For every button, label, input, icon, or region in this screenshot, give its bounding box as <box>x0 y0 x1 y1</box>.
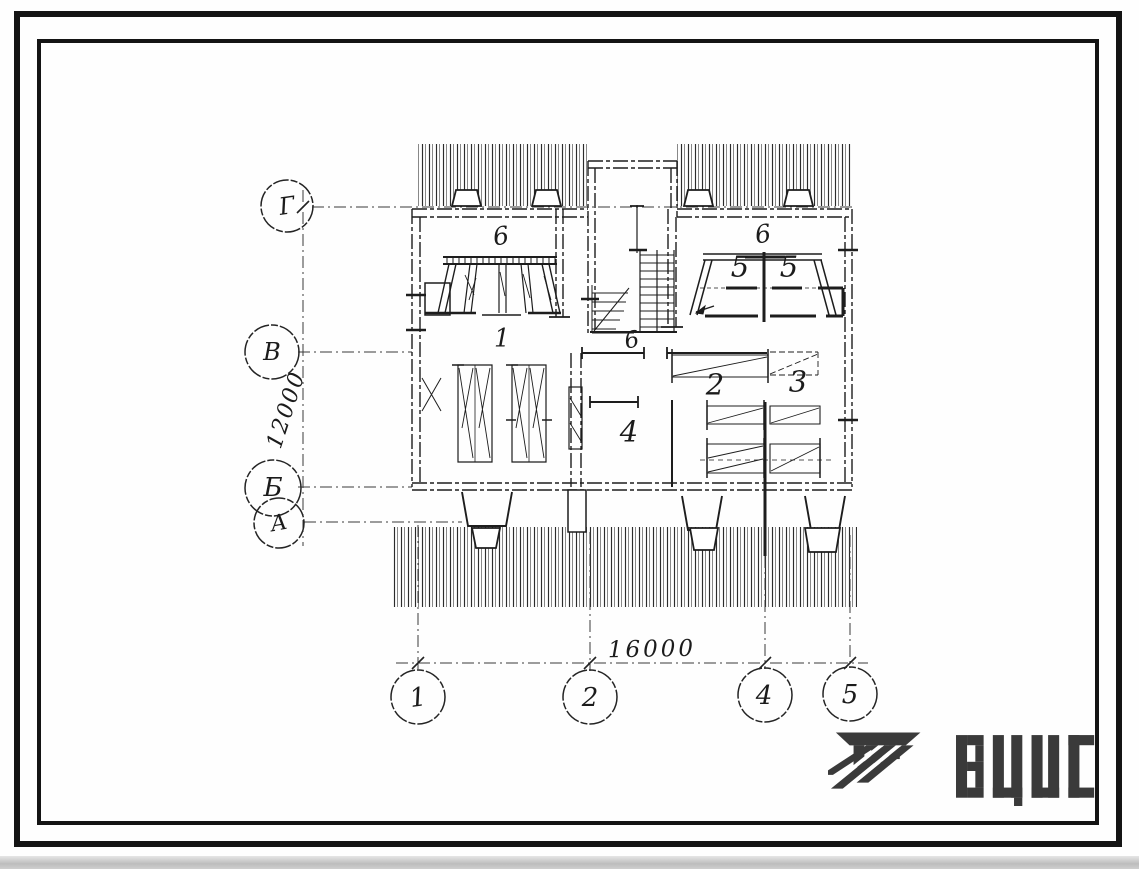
staircase <box>592 205 674 333</box>
logo: ВЦИС <box>828 714 1096 810</box>
room-label-1: 1 <box>494 326 510 351</box>
hatch-bands <box>392 144 857 607</box>
rooms-5-block <box>690 254 843 316</box>
room-label-3: 3 <box>789 368 807 397</box>
logo-emblem-icon <box>828 722 946 806</box>
scan-edge-artifact <box>0 856 1139 869</box>
stove-left-wing <box>425 257 561 315</box>
axis-label-col-4: 4 <box>756 683 773 709</box>
door-swing-marks <box>422 378 441 411</box>
beds-room-1 <box>452 365 552 462</box>
room-label-4: 4 <box>620 418 638 447</box>
arrow-mark <box>696 306 705 314</box>
logo-text: ВЦИС <box>828 714 829 715</box>
room-label-6-right: 6 <box>753 221 772 248</box>
axis-label-col-1: 1 <box>408 684 428 712</box>
winder-stair <box>592 285 634 333</box>
walls <box>406 161 858 556</box>
room-label-5-b: 5 <box>780 253 798 282</box>
dimension-horizontal: 16000 <box>608 638 697 663</box>
axis-label-row-g: Г <box>277 193 296 219</box>
scanned-drawing-page: Г В Б А 1 2 4 5 16000 12000 6 1 6 6 5 5 … <box>0 0 1139 869</box>
axis-label-row-v: В <box>263 340 281 364</box>
beds-rooms-2-3 <box>672 349 832 478</box>
room-label-5-a: 5 <box>731 253 749 282</box>
axis-label-col-5: 5 <box>842 682 859 708</box>
axis-label-col-2: 2 <box>582 685 599 711</box>
logo-letters <box>956 732 1096 810</box>
room-label-6-left: 6 <box>491 223 510 250</box>
room-label-2: 2 <box>706 371 724 400</box>
axis-label-row-a: А <box>269 512 289 537</box>
axis-label-row-b: Б <box>263 475 282 501</box>
